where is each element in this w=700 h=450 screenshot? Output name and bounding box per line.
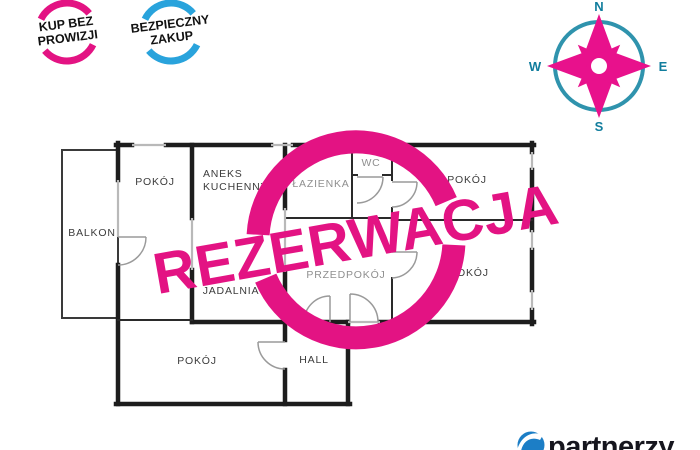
safe-purchase-ring-icon: BEZPIECZNY ZAKUP [128, 0, 214, 66]
agency-logo-text: partnerzy [548, 431, 674, 450]
room-label-hall: HALL [299, 354, 328, 366]
compass-hub [591, 58, 607, 74]
entrance-door-arc [350, 294, 378, 322]
balcony-door-arc [118, 237, 146, 265]
room-label-lazienka: ŁAZIENKA [292, 178, 349, 190]
stamp-ring-icon: REZERWACJA [137, 108, 575, 372]
no-commission-ring-icon: KUP BEZ PROWIZJI [33, 0, 100, 64]
badge-no-commission: KUP BEZ PROWIZJI [33, 0, 100, 64]
badge-safe-purchase: BEZPIECZNY ZAKUP [128, 0, 214, 66]
room-hall-door-arc [258, 342, 285, 369]
compass-label-n: N [594, 0, 603, 14]
room-label-wc: WC [361, 157, 380, 169]
room-label-pokoj-top-left: POKÓJ [135, 175, 175, 188]
compass-label-s: S [595, 119, 604, 134]
compass-rose-icon: N E S W [529, 0, 668, 134]
reservation-stamp: REZERWACJA [137, 108, 575, 372]
floorplan-canvas: KUP BEZ PROWIZJI BEZPIECZNY ZAKUP N E S … [0, 0, 700, 450]
compass-label-w: W [529, 59, 542, 74]
room-label-balkon: BALKON [68, 227, 115, 239]
floorplan-page: KUP BEZ PROWIZJI BEZPIECZNY ZAKUP N E S … [0, 0, 700, 450]
room-label-aneks-line1: ANEKS [203, 168, 243, 180]
room-label-pokoj-bottom: POKÓJ [177, 354, 217, 367]
compass-label-e: E [659, 59, 668, 74]
wc-door-arc [357, 177, 383, 203]
agency-logo: partnerzy [517, 431, 674, 450]
